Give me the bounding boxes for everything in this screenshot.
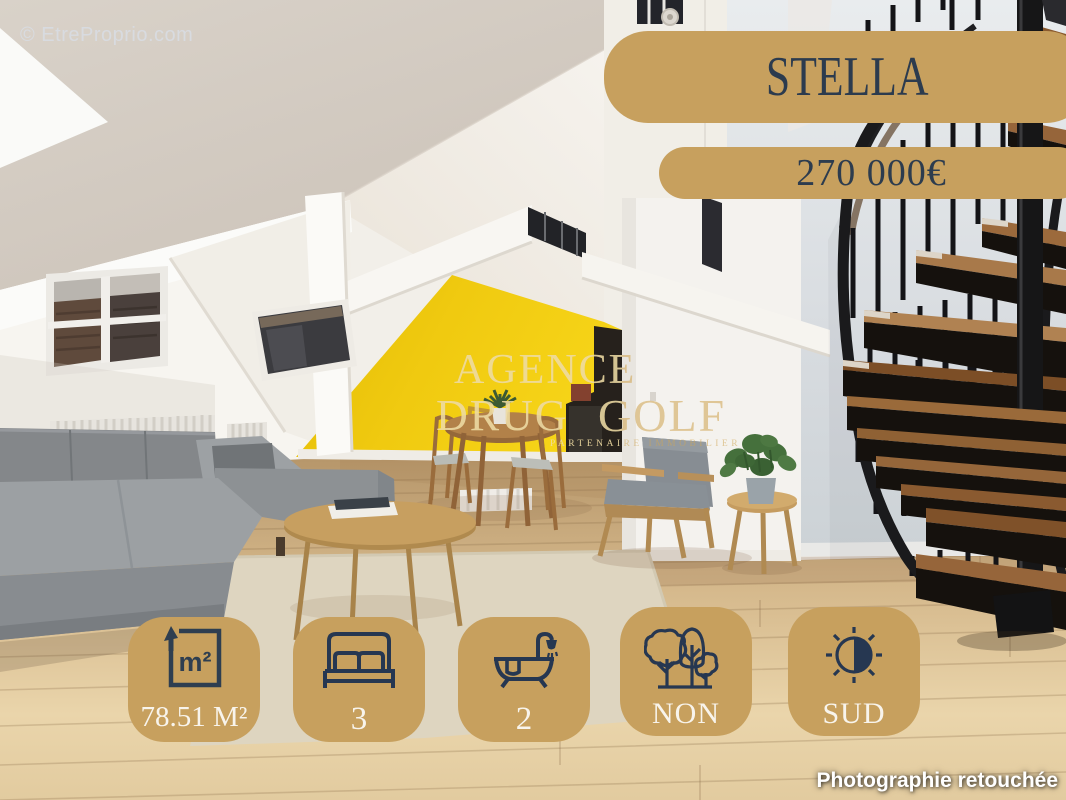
- svg-text:AGENCE: AGENCE: [454, 347, 636, 393]
- svg-text:DRUG: DRUG: [436, 391, 569, 440]
- svg-text:m²: m²: [179, 647, 212, 677]
